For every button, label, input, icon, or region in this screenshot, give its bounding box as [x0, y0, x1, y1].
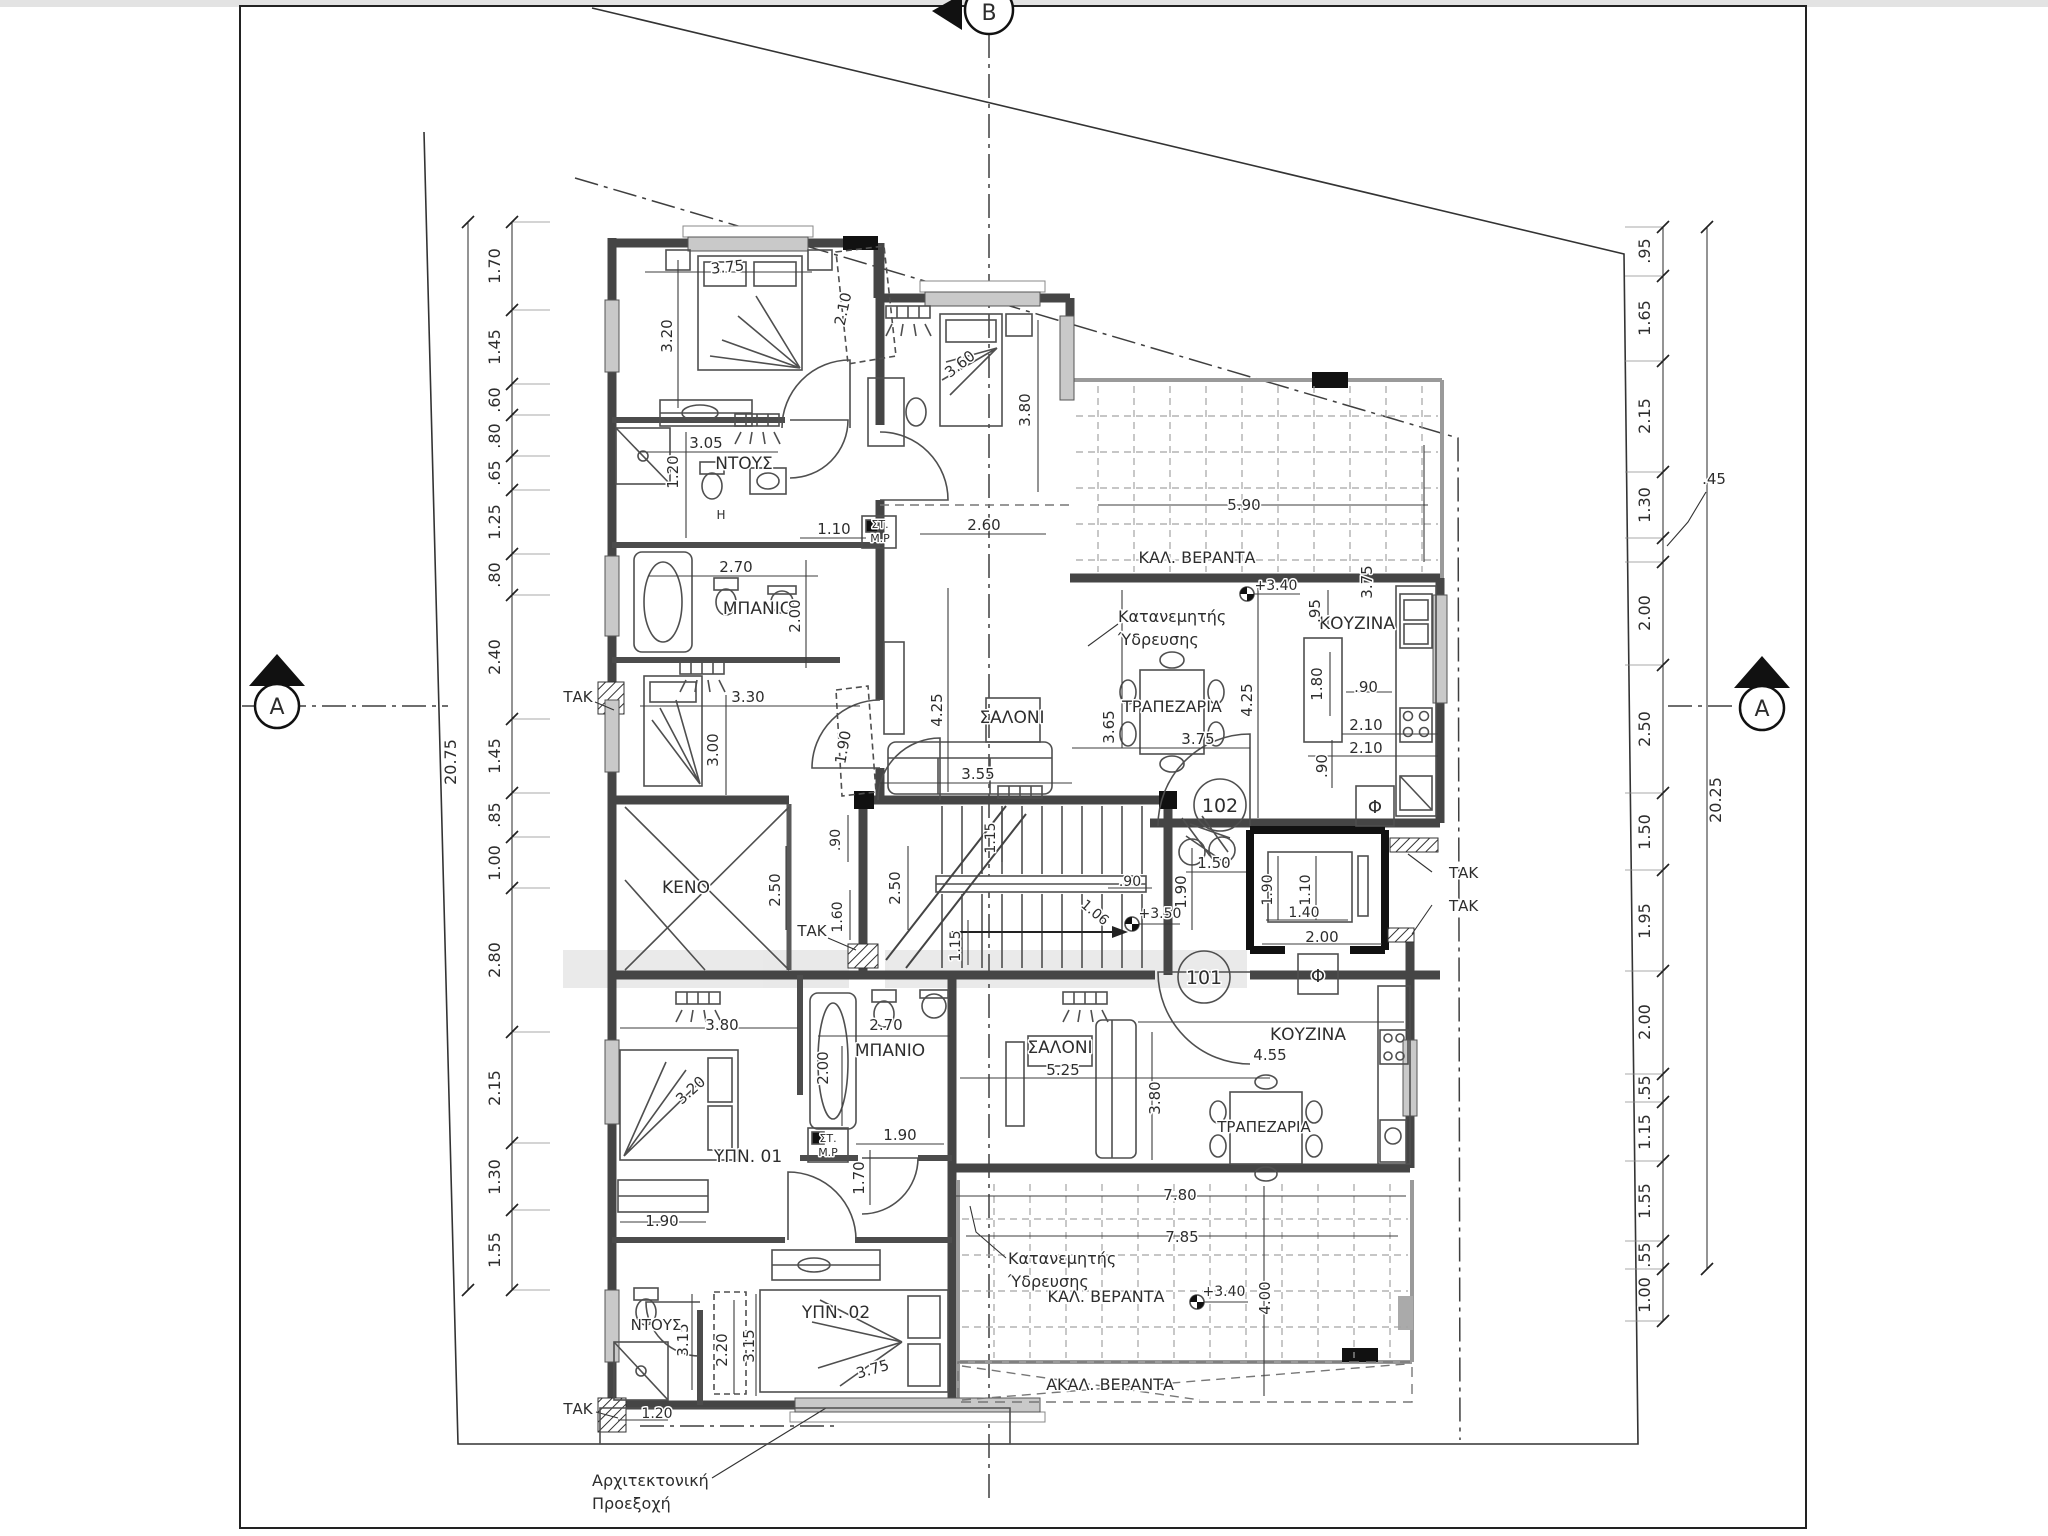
dim-veranda101-400: 4.00	[1256, 1281, 1274, 1314]
dim-bath101-270: 2.70	[869, 1016, 902, 1034]
dim-chain-right-6: 2.00	[1635, 595, 1654, 631]
note-water-dist-low-1: Κατανεμητής	[1008, 1249, 1116, 1268]
dim-kitchen102-210a: 2.10	[1349, 716, 1382, 734]
window-kitchen102	[1433, 595, 1447, 703]
dim-chain-left-6: 1.25	[485, 504, 504, 540]
note-tak-right-2: ΤΑΚ	[1448, 897, 1479, 915]
dim-chain-left-14: 1.30	[485, 1159, 504, 1195]
floor-plan-drawing: B A A 20.751.701.45.60.80.651.25.802.401…	[0, 0, 2048, 1536]
section-letter-a-left: A	[269, 695, 284, 720]
dim-veranda102-590: 5.90	[1227, 496, 1260, 514]
room-label-shower-102: ΝΤΟΥΣ	[715, 454, 773, 474]
room-label-bath-102: ΜΠΑΝΙΟ	[723, 599, 793, 619]
room-label-living-101: ΣΑΛΟΝΙ	[1027, 1038, 1092, 1058]
window-bed2-top	[925, 292, 1040, 306]
dim-lift-190: 1.90	[1260, 874, 1276, 905]
dim-chain-left-1: 1.70	[485, 248, 504, 284]
dim-living102-425: 4.25	[928, 693, 946, 726]
dim-chain-left-7: .80	[485, 562, 504, 587]
level-landing: +3.50	[1139, 906, 1182, 922]
dim-chain-right-8: 1.50	[1635, 814, 1654, 850]
dim-corridor-260: 2.60	[967, 516, 1000, 534]
dim-void-250: 2.50	[766, 873, 784, 906]
dim-kitchen101-455: 4.55	[1253, 1046, 1286, 1064]
dim-closet-090: .90	[828, 829, 844, 851]
dim-chain-left-2: 1.45	[485, 329, 504, 365]
dim-kitchen102-095: .95	[1306, 599, 1324, 623]
dim-chain-right-1: .95	[1635, 238, 1654, 263]
label-mp-box-low: Μ.Ρ	[818, 1146, 838, 1159]
dim-bed3-width: 3.30	[731, 688, 764, 706]
dim-bath101-200: 2.00	[814, 1051, 832, 1084]
label-st-box-up: ΣΤ.	[871, 518, 888, 531]
dim-living101-525: 5.25	[1046, 1061, 1079, 1079]
dim-dining102-375: 3.75	[1181, 730, 1214, 748]
dim-chain-left-10: .85	[485, 802, 504, 827]
dim-closet-160: 1.60	[830, 901, 846, 932]
dim-chain-left-12: 2.80	[485, 942, 504, 978]
room-label-dining-102: ΤΡΑΠΕΖΑΡΙΑ	[1121, 697, 1222, 716]
dim-chain-left-11: 1.00	[485, 845, 504, 881]
dim-veranda101-785: 7.85	[1165, 1228, 1198, 1246]
note-tak-void: ΤΑΚ	[796, 922, 827, 940]
dim-hall-190: 1.90	[1172, 875, 1190, 908]
room-label-veranda-102: ΚΑΛ. ΒΕΡΑΝΤΑ	[1139, 548, 1256, 567]
dim-bed3-height: 3.00	[704, 733, 722, 766]
dim-bed02-220: 2.20	[713, 1333, 731, 1366]
dim-corridor-110: 1.10	[817, 520, 850, 538]
room-label-bed02: ΥΠΝ. 02	[801, 1303, 870, 1323]
dim-lift-110: 1.10	[1298, 874, 1314, 905]
dim-chain-left-13: 2.15	[485, 1070, 504, 1106]
label-st-box-low: ΣΤ.	[819, 1132, 836, 1145]
window-left-1	[605, 300, 619, 372]
level-veranda102: +3.40	[1255, 578, 1298, 594]
dim-living101-380: 3.80	[1146, 1081, 1164, 1114]
dim-living101-780: 7.80	[1163, 1186, 1196, 1204]
dim-chain-right-3: 2.15	[1635, 398, 1654, 434]
dim-bath102-depth: 2.00	[786, 599, 804, 632]
dim-lift-200: 2.00	[1305, 928, 1338, 946]
label-mp-box-up: Μ.Ρ	[870, 532, 890, 545]
dim-bed02-315a: 3.15	[740, 1329, 758, 1362]
dim-shower-width: 3.05	[689, 434, 722, 452]
dim-total-right: 20.25	[1706, 777, 1725, 823]
dim-chain-right-15: 1.00	[1635, 1277, 1654, 1313]
dim-stair-250: 2.50	[886, 871, 904, 904]
dim-chain-left-15: 1.55	[485, 1232, 504, 1268]
sheet-frame	[240, 6, 1806, 1528]
dim-dining102-365: 3.65	[1100, 710, 1118, 743]
label-shaft-phi-low: Φ	[1311, 966, 1325, 987]
section-letter-a-right: A	[1754, 697, 1769, 722]
dim-chain-left-8: 2.40	[485, 639, 504, 675]
dim-chain-left-5: .65	[485, 460, 504, 485]
dim-chain-right-7: 2.50	[1635, 711, 1654, 747]
note-tak-left: ΤΑΚ	[562, 688, 593, 706]
dim-chain-right-10: 2.00	[1635, 1004, 1654, 1040]
dim-hall101-170: 1.70	[850, 1161, 868, 1194]
dim-bike-090: .90	[1119, 874, 1141, 890]
dim-kitchen102-090v: .90	[1313, 754, 1331, 778]
dim-kitchen102-210b: 2.10	[1349, 739, 1382, 757]
note-water-dist-up-2: Ύδρευσης	[1117, 630, 1199, 649]
dim-island-180: 1.80	[1308, 667, 1326, 700]
room-label-kitchen-101: ΚΟΥΖΙΝΑ	[1270, 1025, 1346, 1045]
dim-bath102-width: 2.70	[719, 558, 752, 576]
dim-chain-right-9: 1.95	[1635, 903, 1654, 939]
window-left-2	[605, 556, 619, 636]
dim-hall101-190: 1.90	[883, 1126, 916, 1144]
dim-chain-right-14: .55	[1635, 1242, 1654, 1267]
dim-chain-left-4: .80	[485, 423, 504, 448]
dim-total-left: 20.75	[441, 739, 460, 785]
dim-bed01-380: 3.80	[705, 1016, 738, 1034]
dim-chain-right-2: 1.65	[1635, 300, 1654, 336]
room-label-dining-101: ΤΡΑΠΕΖΑΡΙΑ	[1216, 1118, 1311, 1136]
level-veranda101: +3.40	[1203, 1284, 1246, 1300]
dim-chain-left-9: 1.45	[485, 738, 504, 774]
dim-bed2-height: 3.80	[1016, 393, 1034, 426]
floor-plan-page: B A A 20.751.701.45.60.80.651.25.802.401…	[0, 0, 2048, 1536]
watermark	[563, 950, 1247, 988]
dim-veranda102-375: 3.75	[1358, 565, 1376, 598]
window-left-3	[605, 700, 619, 772]
room-label-bed01: ΥΠΝ. 01	[713, 1147, 782, 1167]
window-bed2-right	[1060, 316, 1074, 400]
room-label-shower-101: ΝΤΟΥΣ	[631, 1316, 682, 1334]
dim-stair-115b: 1.15	[948, 930, 964, 961]
note-arch-projection-1: Αρχιτεκτονική	[592, 1471, 709, 1490]
dim-chain-right-5: .45	[1702, 470, 1726, 488]
dim-island-090: .90	[1354, 678, 1378, 696]
dim-chain-left-3: .60	[485, 387, 504, 412]
room-label-void: ΚΕΝΟ	[662, 878, 710, 898]
apartment-number-101: 101	[1186, 967, 1222, 989]
dim-hall-150: 1.50	[1197, 854, 1230, 872]
dim-chain-right-4: 1.30	[1635, 487, 1654, 523]
dim-shower101-120: 1.20	[641, 1406, 672, 1422]
label-shaft-phi-up: Φ	[1368, 797, 1382, 818]
dim-shower-depth: 1.20	[664, 455, 682, 488]
label-h-boiler: H	[716, 508, 725, 522]
section-letter-b: B	[981, 1, 996, 26]
dim-kitchen102-425: 4.25	[1238, 683, 1256, 716]
room-label-bath-101: ΜΠΑΝΙΟ	[855, 1041, 925, 1061]
dim-lift-140: 1.40	[1288, 905, 1319, 921]
room-label-kitchen-102: ΚΟΥΖΙΝΑ	[1319, 614, 1395, 634]
dim-bed01-wardrobe: 1.90	[645, 1212, 678, 1230]
room-label-living-102: ΣΑΛΟΝΙ	[979, 708, 1044, 728]
dim-bed1-width: 3.75	[710, 256, 745, 277]
note-tak-bottom: ΤΑΚ	[562, 1400, 593, 1418]
note-water-dist-up-1: Κατανεμητής	[1118, 607, 1226, 626]
window-bed1-top	[688, 237, 808, 251]
note-water-dist-low-2: Ύδρευσης	[1007, 1272, 1089, 1291]
note-tak-right-1: ΤΑΚ	[1448, 864, 1479, 882]
dim-chain-right-11: .55	[1635, 1075, 1654, 1100]
window-bed02-bottom	[795, 1398, 1040, 1412]
dim-living102-355: 3.55	[961, 765, 994, 783]
window-left-4	[605, 1040, 619, 1124]
window-left-5	[605, 1290, 619, 1362]
note-arch-projection-2: Προεξοχή	[592, 1494, 671, 1513]
room-label-veranda-uncov: ΑΚΑΛ. ΒΕΡΑΝΤΑ	[1046, 1375, 1174, 1394]
dim-stair-115a: 1.15	[983, 822, 999, 853]
apartment-number-102: 102	[1202, 795, 1238, 817]
dim-chain-right-13: 1.55	[1635, 1183, 1654, 1219]
dim-bed1-height: 3.20	[658, 319, 676, 352]
dim-chain-right-12: 1.15	[1635, 1114, 1654, 1150]
